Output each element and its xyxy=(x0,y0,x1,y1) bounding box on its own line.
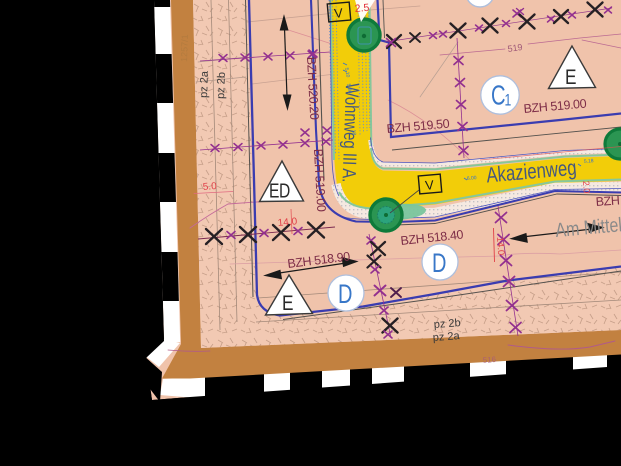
svg-text:2.0: 2.0 xyxy=(581,180,592,193)
svg-text:E: E xyxy=(282,293,293,316)
svg-text:2.5: 2.5 xyxy=(354,2,370,15)
svg-text:1257/1: 1257/1 xyxy=(179,34,190,62)
svg-text:5.18: 5.18 xyxy=(584,158,594,165)
svg-text:Wohnweg III A.: Wohnweg III A. xyxy=(338,83,363,183)
svg-text:pz 2b: pz 2b xyxy=(215,72,228,99)
svg-text:14.0: 14.0 xyxy=(277,216,298,229)
svg-text:BZH 518: BZH 518 xyxy=(595,192,621,209)
svg-text:C: C xyxy=(491,80,506,111)
svg-text:516: 516 xyxy=(482,355,496,365)
svg-text:1: 1 xyxy=(505,92,512,110)
svg-text:519: 519 xyxy=(507,42,523,54)
svg-text:D: D xyxy=(338,279,352,310)
svg-text:V: V xyxy=(424,177,434,193)
svg-text:pz 2a: pz 2a xyxy=(198,70,211,98)
svg-text:V: V xyxy=(333,5,343,21)
svg-text:pz 2b: pz 2b xyxy=(433,317,461,331)
svg-text:E: E xyxy=(565,67,576,90)
svg-text:D: D xyxy=(432,248,446,279)
svg-text:ED: ED xyxy=(269,180,290,202)
svg-text:5.0: 5.0 xyxy=(202,181,217,193)
svg-text:14.0: 14.0 xyxy=(494,236,506,255)
svg-text:pz 2a: pz 2a xyxy=(432,330,461,344)
svg-text:6.00: 6.00 xyxy=(467,175,477,182)
